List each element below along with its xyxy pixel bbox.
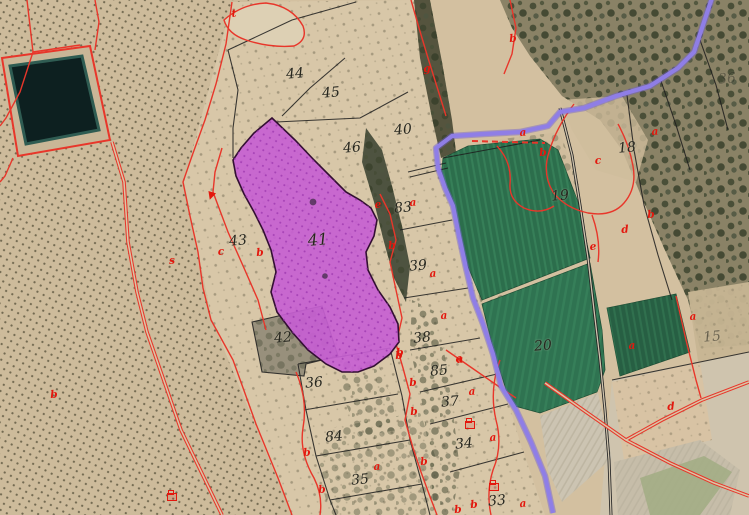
reservoir [2,46,110,156]
map-canvas [0,0,749,515]
map-viewport[interactable]: 4445464083414339423836853784343533191820… [0,0,749,515]
